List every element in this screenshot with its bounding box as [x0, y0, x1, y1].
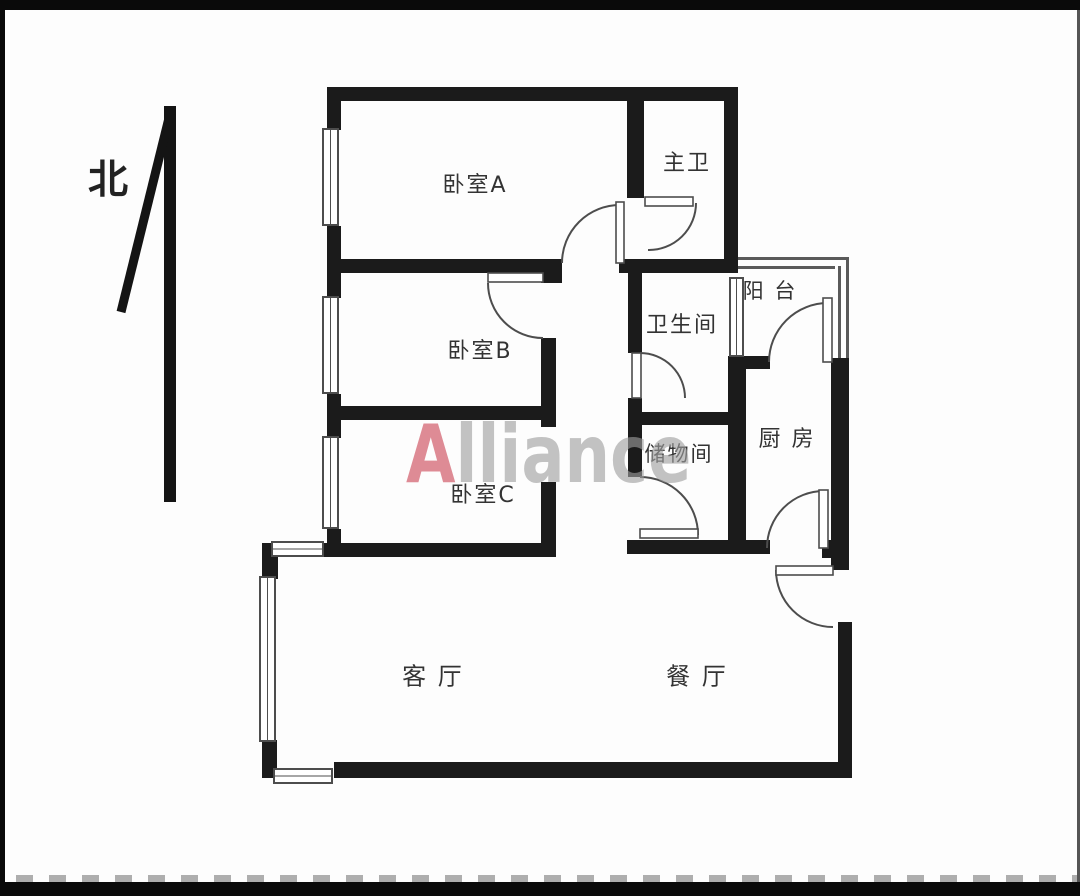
room-label-kitchen: 厨 房 — [759, 421, 816, 453]
watermark-lead-letter: A — [406, 408, 456, 501]
floor-plan-image: 北 卧室A 主卫 卧室B 卫生间 阳 台 卧室C 储物间 厨 房 客 厅 餐 厅… — [0, 0, 1080, 896]
room-label-bathroom: 卫生间 — [646, 307, 718, 339]
room-label-bedroom-a: 卧室A — [442, 167, 507, 199]
room-label-living: 客 厅 — [402, 657, 464, 692]
alliance-watermark: Alliance — [406, 408, 691, 501]
room-label-master-bath: 主卫 — [663, 145, 711, 177]
watermark-rest: lliance — [456, 408, 692, 501]
frame-top-bar — [0, 0, 1080, 10]
frame-bottom-bar — [0, 882, 1080, 896]
frame-left-bar — [0, 0, 5, 896]
room-label-balcony: 阳 台 — [743, 275, 798, 305]
room-label-bedroom-b: 卧室B — [447, 333, 512, 365]
room-label-dining: 餐 厅 — [666, 657, 728, 692]
